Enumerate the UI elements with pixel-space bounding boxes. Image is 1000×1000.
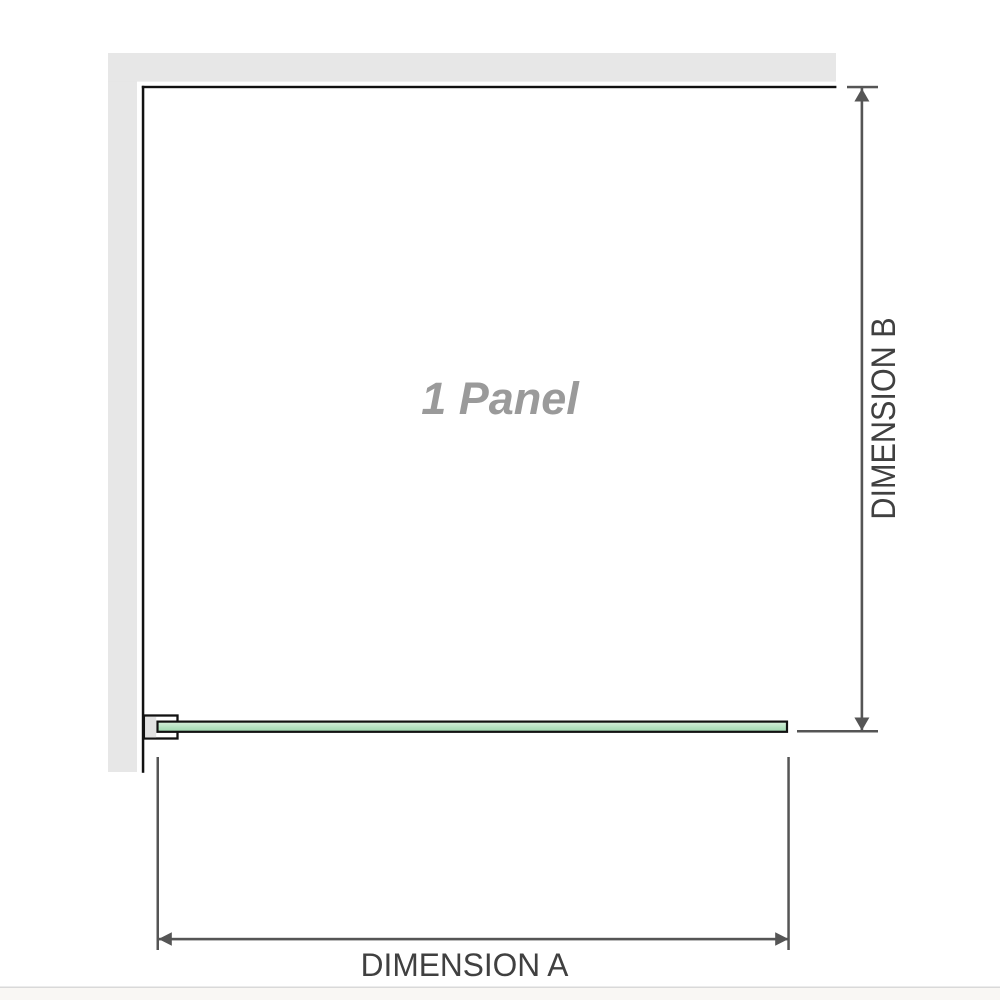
- svg-text:DIMENSION A: DIMENSION A: [361, 947, 569, 983]
- svg-text:DIMENSION B: DIMENSION B: [865, 317, 903, 519]
- svg-text:1 Panel: 1 Panel: [421, 373, 580, 424]
